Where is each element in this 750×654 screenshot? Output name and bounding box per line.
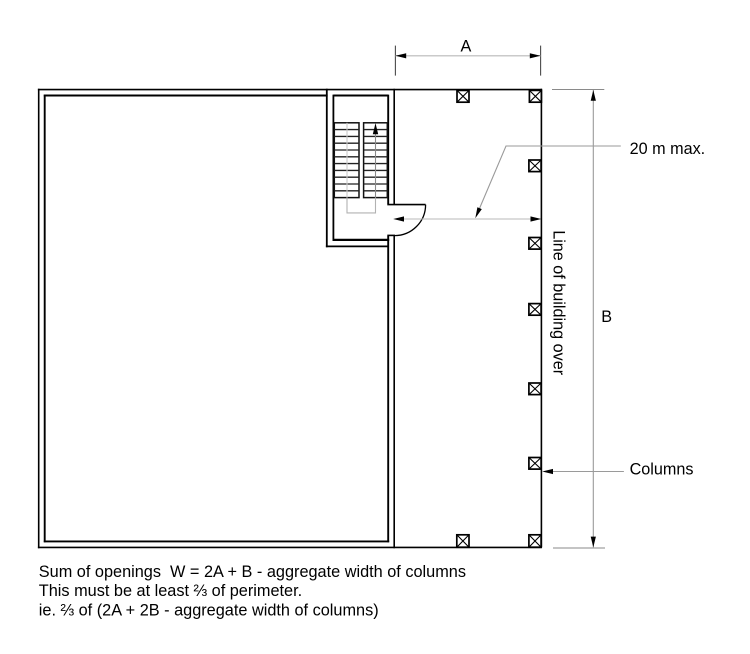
svg-text:B: B: [601, 308, 612, 326]
svg-text:Line of building over: Line of building over: [550, 230, 568, 375]
svg-text:Columns: Columns: [630, 461, 694, 479]
svg-text:20 m max.: 20 m max.: [630, 140, 706, 158]
svg-text:ie. ⅔ of (2A + 2B - aggregate: ie. ⅔ of (2A + 2B - aggregate width of c…: [39, 601, 379, 619]
svg-text:Sum of openings W = 2A + B -: Sum of openings W = 2A + B - aggregate w…: [39, 563, 466, 581]
svg-text:This must be at least ⅔ of per: This must be at least ⅔ of perimeter.: [39, 582, 302, 600]
svg-text:A: A: [460, 37, 471, 55]
